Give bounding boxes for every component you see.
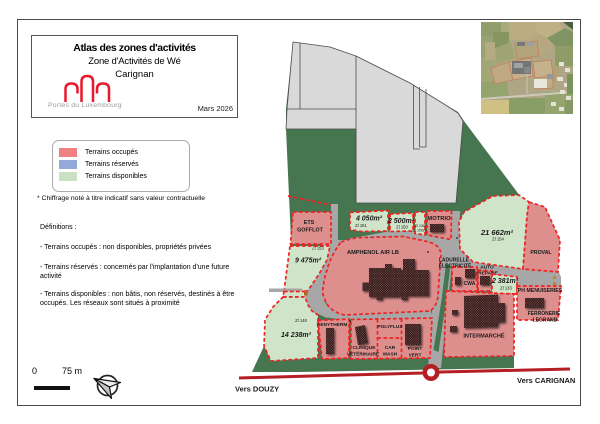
svg-text:PROVAL: PROVAL (530, 250, 552, 256)
svg-text:14 238m²: 14 238m² (281, 332, 312, 339)
svg-text:AMPHENOL AIR LB: AMPHENOL AIR LB (347, 250, 399, 256)
svg-text:CAR: CAR (385, 345, 396, 351)
svg-text:MOTRIO: MOTRIO (427, 216, 451, 222)
svg-text:Zl 136: Zl 136 (415, 224, 426, 228)
svg-text:Zl 151: Zl 151 (355, 223, 367, 228)
svg-text:CWA: CWA (464, 281, 476, 287)
svg-text:CLINIQUE: CLINIQUE (353, 345, 377, 351)
svg-text:PH MENUISERIES: PH MENUISERIES (518, 288, 563, 294)
svg-text:POINT: POINT (408, 346, 423, 352)
svg-text:ÉLECTRICITÉ: ÉLECTRICITÉ (439, 262, 472, 270)
svg-text:POLYFLUX: POLYFLUX (377, 324, 403, 330)
svg-text:AUTO: AUTO (480, 265, 494, 271)
svg-text:Vers DOUZY: Vers DOUZY (235, 385, 279, 394)
svg-text:Zl 148: Zl 148 (295, 318, 307, 323)
svg-text:Zl 133: Zl 133 (500, 286, 512, 291)
svg-text:FERRONERIE: FERRONERIE (528, 311, 561, 317)
svg-text:GENYTHERM: GENYTHERM (317, 322, 348, 328)
svg-text:LEGRAND: LEGRAND (533, 318, 558, 324)
svg-text:Zl 153: Zl 153 (312, 246, 324, 251)
svg-text:Zl 154: Zl 154 (492, 237, 504, 242)
svg-text:9 475m²: 9 475m² (295, 258, 322, 265)
svg-text:Zl 150: Zl 150 (396, 225, 408, 230)
svg-text:4 050m²: 4 050m² (355, 216, 383, 223)
svg-text:INTERMARCHÉ: INTERMARCHÉ (463, 332, 505, 340)
svg-text:Vers CARIGNAN: Vers CARIGNAN (517, 376, 575, 385)
svg-text:2 381m²: 2 381m² (491, 278, 519, 285)
svg-text:WASH: WASH (383, 352, 398, 358)
svg-text:VERT: VERT (409, 353, 422, 359)
svg-text:ETS: ETS (304, 220, 315, 226)
svg-text:GOFFLOT: GOFFLOT (297, 228, 323, 234)
